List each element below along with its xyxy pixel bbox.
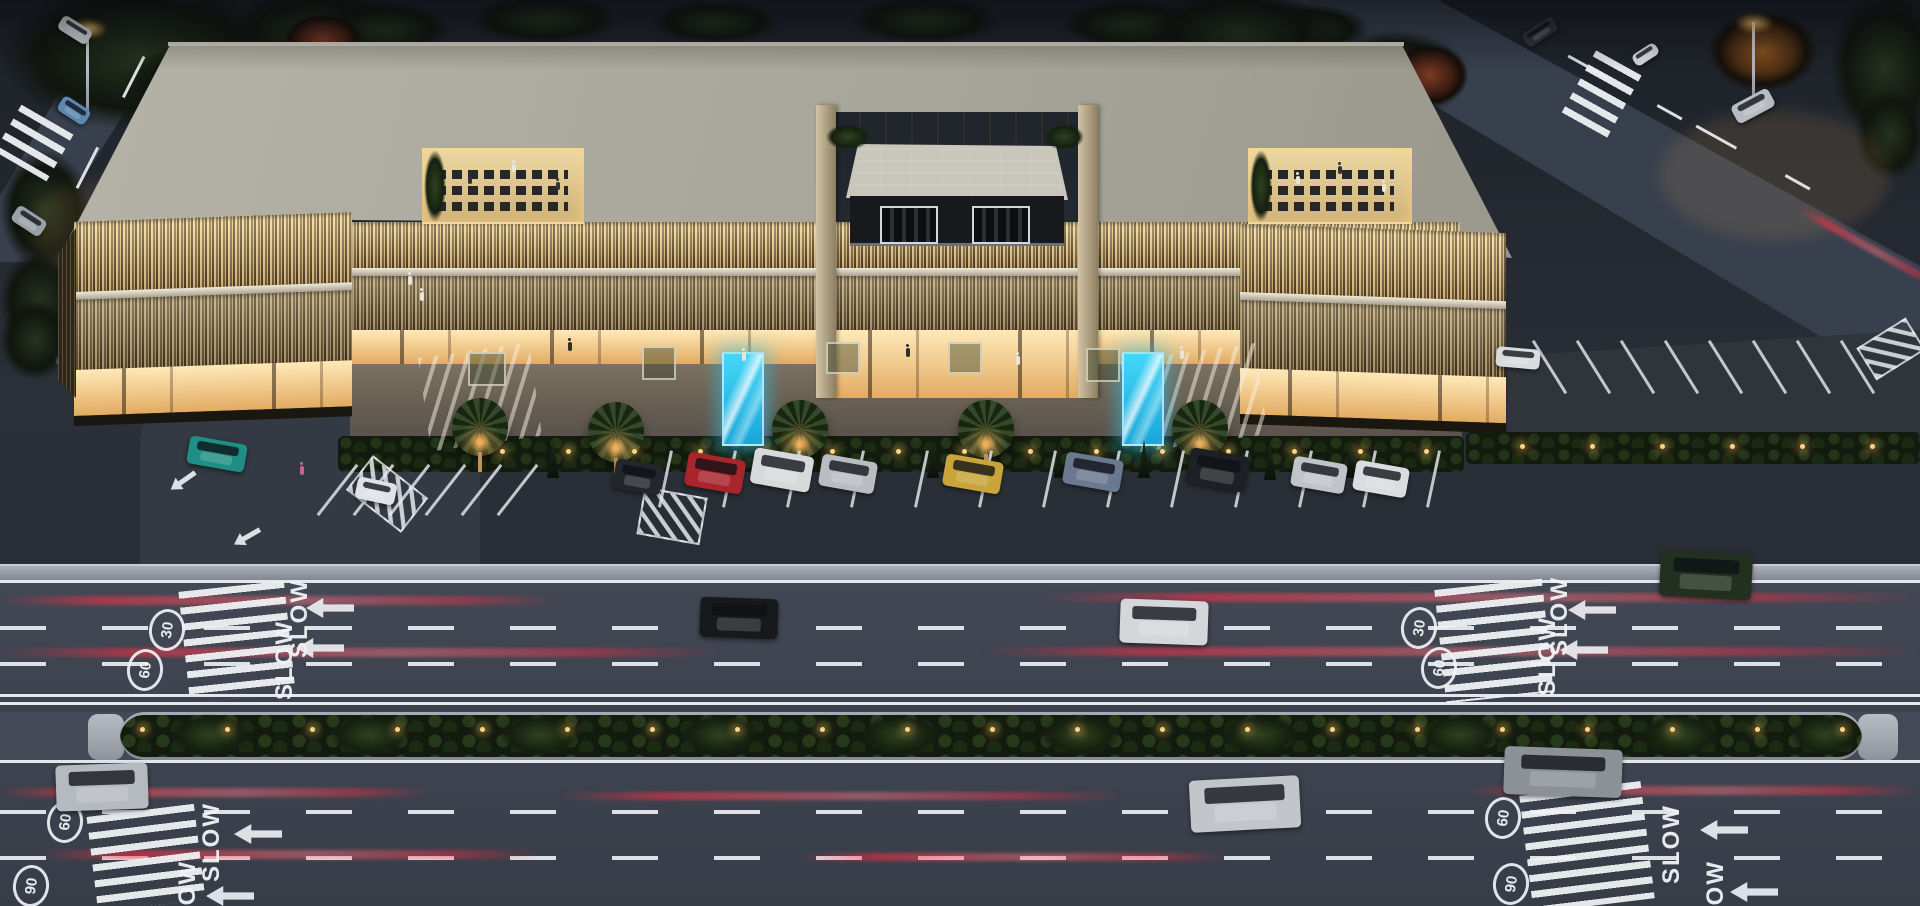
parking-stripe xyxy=(1708,340,1743,394)
canopy-plants xyxy=(826,124,870,150)
median-tree xyxy=(680,714,760,756)
parking-stripe xyxy=(1752,340,1787,394)
person xyxy=(468,176,472,184)
parked-car-white xyxy=(1495,346,1541,370)
parked-car-slate xyxy=(1062,451,1125,493)
teal-car xyxy=(186,435,248,473)
terrace-furniture xyxy=(972,206,1030,244)
taillight-streak xyxy=(560,792,1120,800)
median-tree xyxy=(860,714,940,756)
median-light xyxy=(480,727,485,732)
person xyxy=(1016,356,1020,365)
cypress-tree xyxy=(545,440,561,478)
turn-arrow xyxy=(167,467,200,496)
hedge-light xyxy=(632,449,637,454)
planter-box xyxy=(468,352,506,386)
car-roof xyxy=(1679,574,1731,591)
no-parking-hatch xyxy=(1856,318,1920,381)
car-roof xyxy=(76,786,128,803)
turn-arrow xyxy=(231,523,264,550)
crosswalk xyxy=(1519,781,1654,906)
hedge-light xyxy=(896,449,901,454)
sedan-black xyxy=(699,597,778,640)
lane-arrow-left xyxy=(1700,820,1748,840)
person xyxy=(408,276,412,285)
aerial-rendering-scene: SLOWSLOWSLOWSLOWSLOWSLOWSLOWSLOW30603060… xyxy=(0,0,1920,906)
lane-arrow-left xyxy=(1730,882,1778,902)
hedge-light xyxy=(1292,449,1297,454)
median-light xyxy=(820,727,825,732)
slow-marking: SLOW xyxy=(1705,855,1727,906)
terrace-furniture xyxy=(880,206,938,244)
car-windshield xyxy=(1673,558,1740,575)
parking-stripe xyxy=(1796,340,1831,394)
median-tree xyxy=(1420,714,1500,756)
rooftop-desks xyxy=(1262,170,1394,179)
hedge-light xyxy=(1520,444,1525,449)
median-tree xyxy=(1220,714,1300,756)
rooftop-desks xyxy=(1262,202,1394,211)
person xyxy=(1296,176,1300,184)
median-tree xyxy=(330,714,410,756)
median-light xyxy=(1500,727,1505,732)
parking-stripe xyxy=(1042,450,1057,507)
parked-car-yellow xyxy=(942,453,1005,495)
hedge-light xyxy=(500,449,505,454)
median-light xyxy=(1415,727,1420,732)
lane-arrow-left xyxy=(206,886,254,906)
rooftop-desks xyxy=(1262,186,1394,195)
hedge-light xyxy=(1730,444,1735,449)
median-light xyxy=(310,727,315,732)
parking-stripe xyxy=(914,450,929,507)
median-tree xyxy=(1040,714,1120,756)
speed-limit-90: 90 xyxy=(1490,861,1531,906)
hedge-light xyxy=(962,449,967,454)
taillight-streak xyxy=(800,853,1230,861)
parking-stripe xyxy=(1576,340,1611,394)
terrace-planter xyxy=(424,150,446,222)
person xyxy=(906,348,910,357)
slow-marking: SLOW xyxy=(274,615,296,705)
parked-car-white xyxy=(1352,460,1410,499)
speed-limit-30: 30 xyxy=(1398,605,1439,652)
water-feature xyxy=(722,352,764,446)
rooftop-desks xyxy=(436,170,568,179)
hedge-light xyxy=(1358,449,1363,454)
median-tree xyxy=(1640,714,1720,756)
median-light xyxy=(1160,727,1165,732)
median-light xyxy=(1755,727,1760,732)
median-tree xyxy=(170,714,250,756)
cypress-tree xyxy=(925,440,941,478)
slow-marking: SLOW xyxy=(177,855,199,906)
median-light xyxy=(1585,727,1590,732)
person xyxy=(512,164,516,172)
median-light xyxy=(650,727,655,732)
hedge-light xyxy=(1160,449,1165,454)
foreground-sprites: SLOWSLOWSLOWSLOWSLOWSLOWSLOWSLOW30603060… xyxy=(0,0,1920,906)
car-roof xyxy=(1139,621,1189,637)
person xyxy=(1382,184,1386,192)
slow-marking: SLOW xyxy=(201,797,223,887)
parking-stripe xyxy=(425,464,467,516)
planter-box xyxy=(948,342,982,374)
parked-car-red xyxy=(683,451,746,495)
car-roof xyxy=(1214,802,1276,822)
taillight-streak xyxy=(0,648,720,657)
car-roof xyxy=(717,617,761,631)
slow-marking: SLOW xyxy=(1661,799,1683,889)
cypress-tree xyxy=(1262,442,1278,480)
hedge-light xyxy=(1800,444,1805,449)
person xyxy=(1180,350,1184,359)
hedge-light xyxy=(566,449,571,454)
water-feature xyxy=(1122,352,1164,446)
parked-car-silver xyxy=(818,453,879,494)
slow-marking: SLOW xyxy=(1537,611,1559,701)
speed-limit-90: 90 xyxy=(10,863,51,906)
median-light xyxy=(1330,727,1335,732)
hedge-light xyxy=(1094,449,1099,454)
parked-car-dark xyxy=(612,458,664,496)
rooftop-desks xyxy=(436,202,568,211)
hedge-light xyxy=(1660,444,1665,449)
rooftop-desks xyxy=(436,186,568,195)
car-windshield xyxy=(1205,784,1285,804)
hatchback-silver xyxy=(1189,775,1302,833)
lane-arrow-left xyxy=(1568,600,1616,620)
suv-darkgreen xyxy=(1659,550,1753,601)
car-roof xyxy=(1529,771,1596,789)
planter-box xyxy=(826,342,860,374)
car-windshield xyxy=(68,770,135,786)
parked-car-silver xyxy=(1290,456,1348,495)
planter-box xyxy=(642,346,676,380)
median-light xyxy=(140,727,145,732)
hedge-light xyxy=(1590,444,1595,449)
palm-tree xyxy=(452,398,508,456)
lane-arrow-left xyxy=(234,824,282,844)
parking-stripe xyxy=(1664,340,1699,394)
no-parking-hatch xyxy=(636,487,707,545)
parking-stripe xyxy=(1620,340,1655,394)
car-windshield xyxy=(1132,606,1196,621)
median-light xyxy=(1075,727,1080,732)
hedge-light xyxy=(1028,449,1033,454)
suv-white xyxy=(1119,598,1208,645)
person xyxy=(556,182,560,190)
median-light xyxy=(735,727,740,732)
median-light xyxy=(1840,727,1845,732)
sedan-silver xyxy=(55,762,149,811)
hedge-light xyxy=(830,449,835,454)
sky-vignette xyxy=(0,0,1920,70)
speed-limit-60: 60 xyxy=(1482,795,1523,842)
median-light xyxy=(565,727,570,732)
hedge-light xyxy=(1870,444,1875,449)
parking-stripe xyxy=(497,464,539,516)
median-tree xyxy=(1790,714,1860,756)
terrace-planter xyxy=(1250,150,1272,222)
median-light xyxy=(905,727,910,732)
planter-box xyxy=(1086,348,1120,382)
median-tree xyxy=(500,714,580,756)
car-windshield xyxy=(711,603,768,617)
person xyxy=(420,292,424,301)
car-roof xyxy=(1505,357,1530,366)
median-light xyxy=(1245,727,1250,732)
suv-gray xyxy=(1503,746,1623,798)
median-light xyxy=(1670,727,1675,732)
palm-tree xyxy=(772,400,828,458)
road-edge-line xyxy=(0,760,1920,763)
hedge-light xyxy=(1424,449,1429,454)
median-light xyxy=(395,727,400,732)
person xyxy=(1338,166,1342,174)
median-light xyxy=(990,727,995,732)
person xyxy=(568,342,572,351)
parking-stripe xyxy=(1170,450,1185,507)
car-windshield xyxy=(1521,754,1606,771)
person xyxy=(742,352,746,361)
parking-stripe xyxy=(1426,450,1441,507)
parked-suv-black xyxy=(1185,447,1250,493)
median-light xyxy=(225,727,230,732)
canopy-plants xyxy=(1044,124,1084,150)
person xyxy=(300,466,304,475)
